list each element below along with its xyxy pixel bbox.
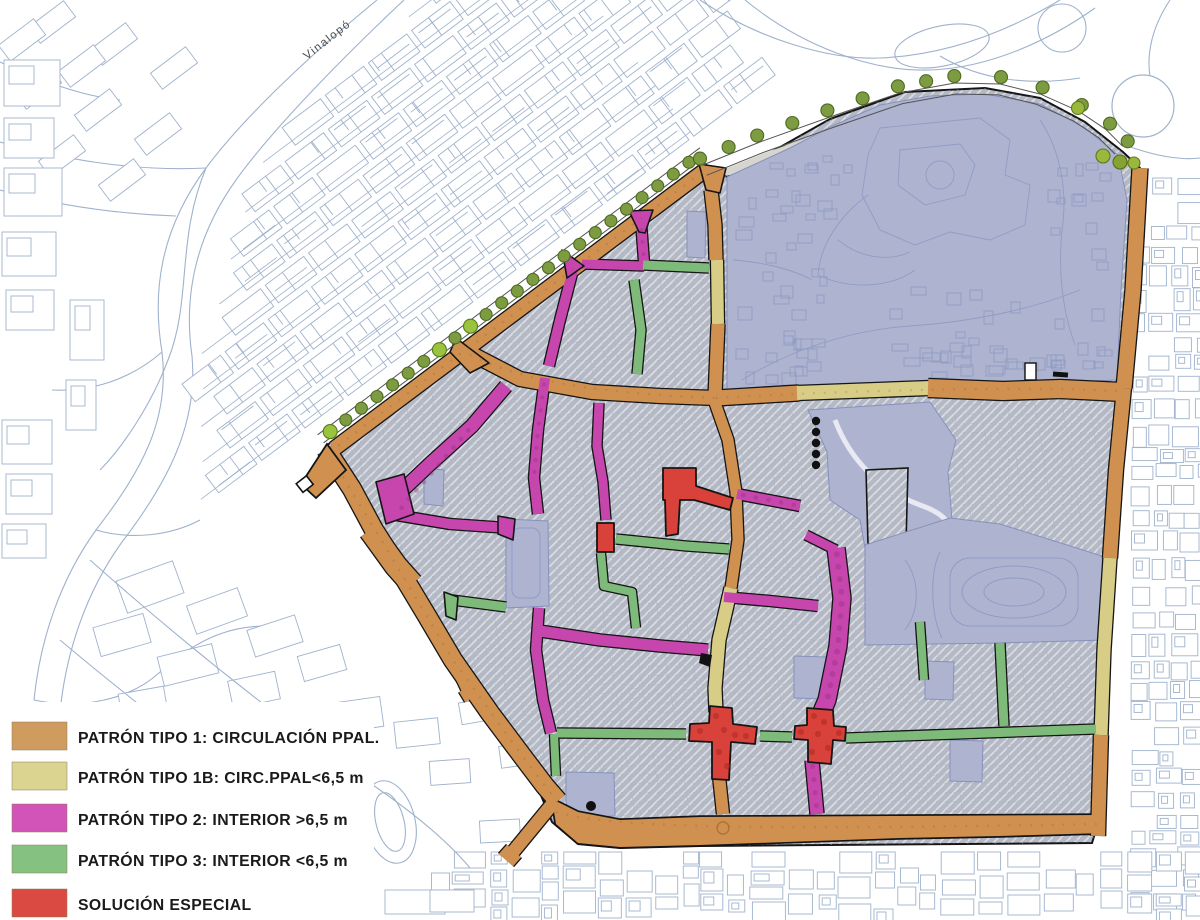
svg-text:SOLUCIÓN ESPECIAL: SOLUCIÓN ESPECIAL	[78, 895, 252, 914]
svg-text:PATRÓN TIPO 3: INTERIOR <6,5 m: PATRÓN TIPO 3: INTERIOR <6,5 m	[78, 851, 348, 870]
svg-text:PATRÓN TIPO 1B: CIRC.PPAL<6,5: PATRÓN TIPO 1B: CIRC.PPAL<6,5 m	[78, 768, 364, 787]
svg-text:PATRÓN TIPO 2: INTERIOR >6,5 m: PATRÓN TIPO 2: INTERIOR >6,5 m	[78, 810, 348, 829]
svg-text:PATRÓN TIPO 1: CIRCULACIÓN PPA: PATRÓN TIPO 1: CIRCULACIÓN PPAL.	[78, 728, 380, 747]
